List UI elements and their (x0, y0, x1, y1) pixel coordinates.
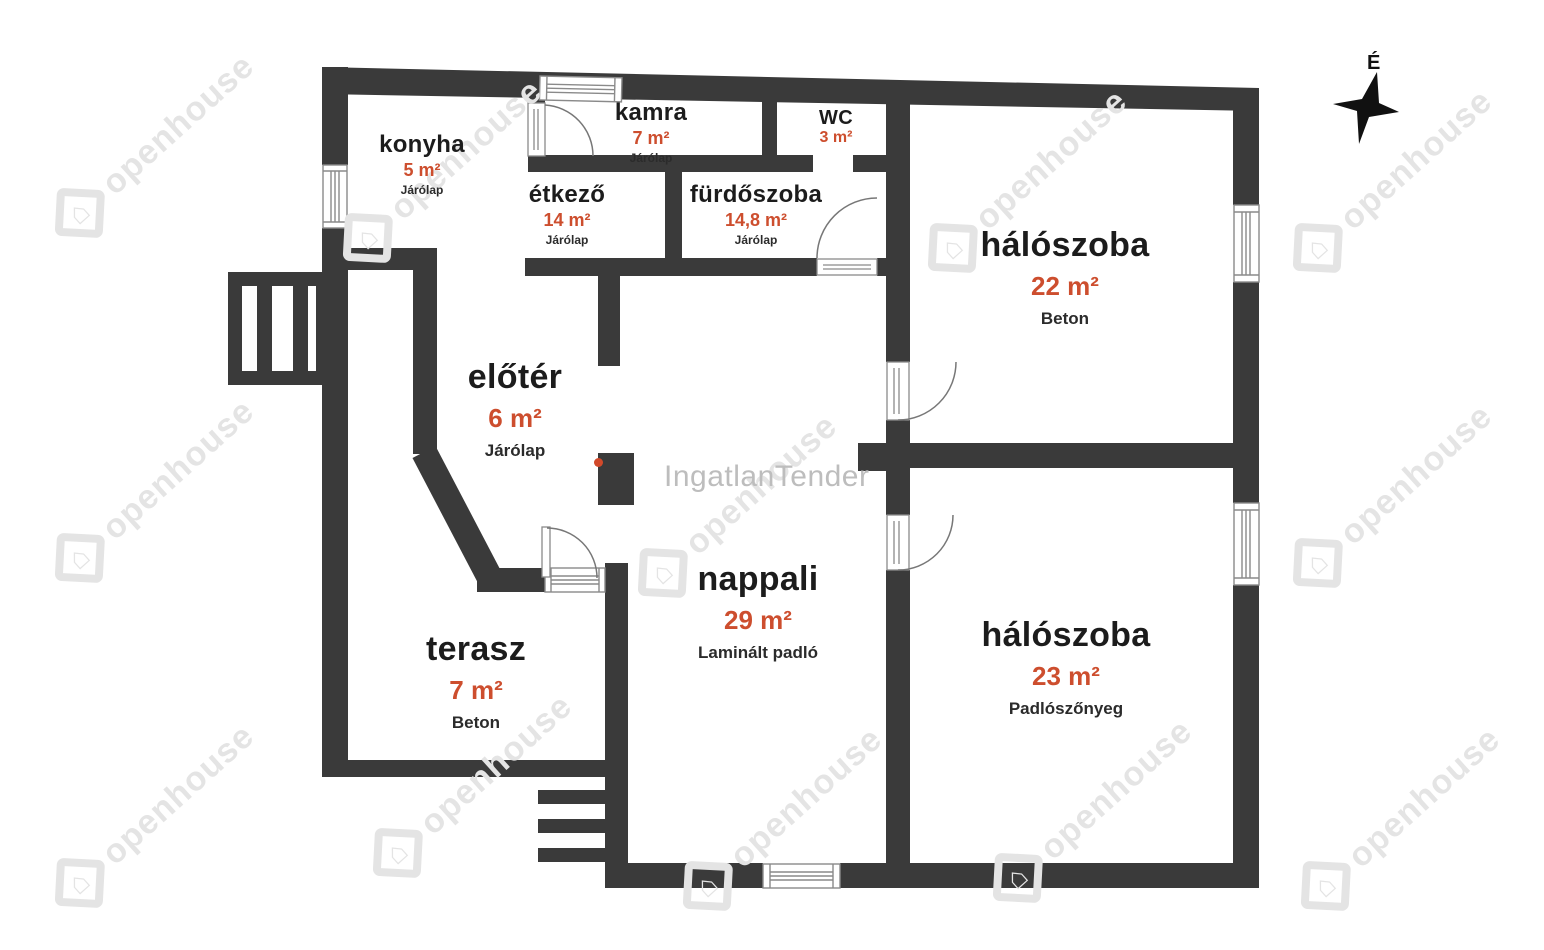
room-floor: Járólap (571, 152, 731, 165)
room-name: WC (786, 108, 886, 129)
room-label-haloszoba-2: hálószoba 23 m² Padlószőnyeg (946, 618, 1186, 718)
room-name: hálószoba (945, 228, 1185, 264)
room-name: hálószoba (946, 618, 1186, 654)
room-label-wc: WC 3 m² (786, 108, 886, 147)
room-area: 6 m² (425, 405, 605, 432)
room-name: étkező (487, 182, 647, 207)
room-label-nappali: nappali 29 m² Laminált padló (648, 562, 868, 662)
room-name: kamra (571, 100, 731, 125)
room-name: fürdőszoba (656, 182, 856, 207)
room-label-eloter: előtér 6 m² Járólap (425, 360, 605, 460)
room-area: 14 m² (487, 211, 647, 230)
room-area: 7 m² (386, 677, 566, 704)
compass-north-label: É (1367, 52, 1380, 75)
room-area: 14,8 m² (656, 211, 856, 230)
room-floor: Beton (386, 714, 566, 732)
room-label-terasz: terasz 7 m² Beton (386, 632, 566, 732)
room-labels-layer: konyha 5 m² Járólap kamra 7 m² Járólap é… (0, 0, 1544, 950)
room-area: 22 m² (945, 273, 1185, 300)
room-name: nappali (648, 562, 868, 598)
room-area: 29 m² (648, 607, 868, 634)
room-floor: Járólap (487, 234, 647, 247)
room-floor: Padlószőnyeg (946, 700, 1186, 718)
room-floor: Járólap (425, 442, 605, 460)
room-name: konyha (342, 132, 502, 157)
room-name: előtér (425, 360, 605, 396)
room-floor: Járólap (342, 184, 502, 197)
room-floor: Laminált padló (648, 644, 868, 662)
room-area: 7 m² (571, 129, 731, 148)
room-area: 3 m² (786, 130, 886, 147)
room-area: 23 m² (946, 663, 1186, 690)
room-label-etkezo: étkező 14 m² Járólap (487, 182, 647, 247)
room-floor: Járólap (656, 234, 856, 247)
room-label-kamra: kamra 7 m² Járólap (571, 100, 731, 165)
room-label-furdoszoba: fürdőszoba 14,8 m² Járólap (656, 182, 856, 247)
room-floor: Beton (945, 310, 1185, 328)
room-label-konyha: konyha 5 m² Járólap (342, 132, 502, 197)
room-name: terasz (386, 632, 566, 668)
room-area: 5 m² (342, 161, 502, 180)
room-label-haloszoba-1: hálószoba 22 m² Beton (945, 228, 1185, 328)
floorplan-page: openhouse openhouse openhouse openhouse … (0, 0, 1544, 950)
